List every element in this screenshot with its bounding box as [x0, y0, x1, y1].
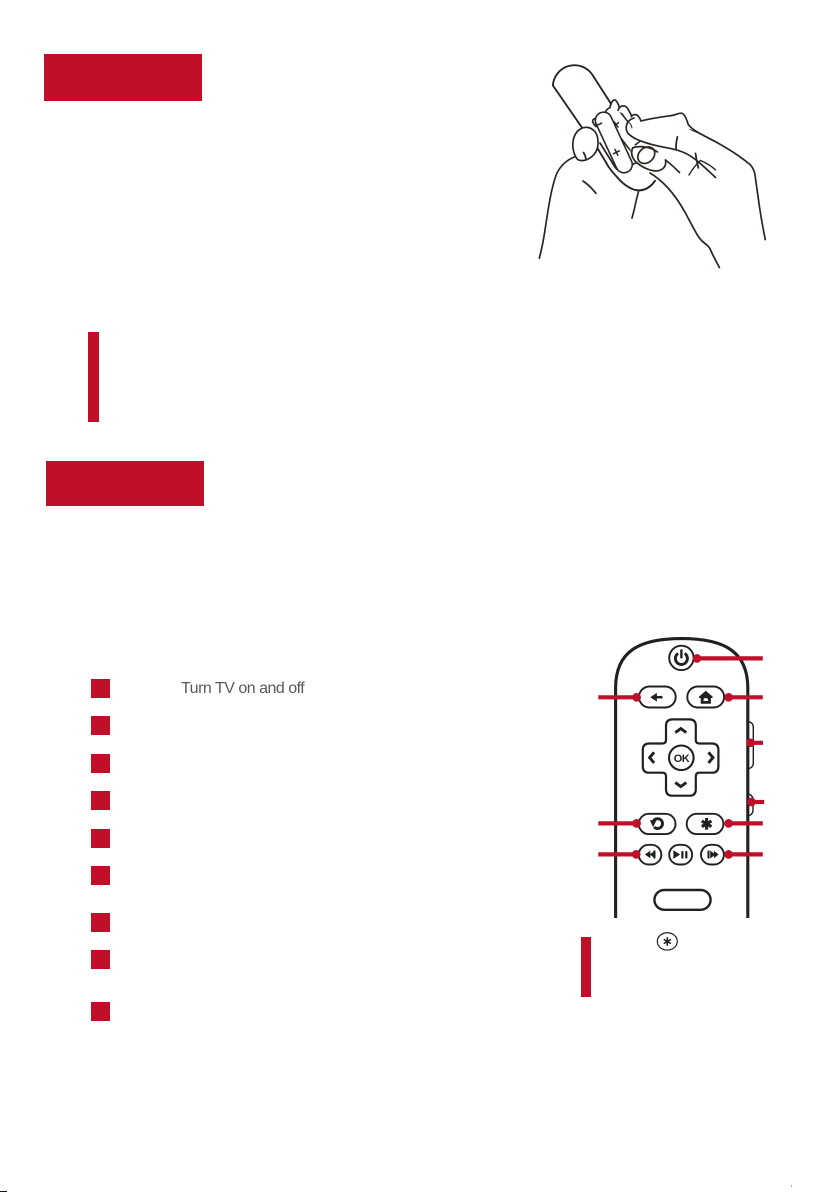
svg-text:OK: OK — [674, 753, 690, 765]
